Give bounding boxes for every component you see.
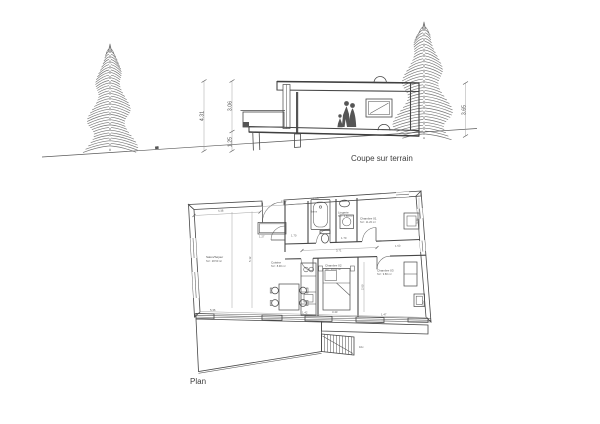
svg-text:1.42: 1.42 xyxy=(302,310,308,314)
top-wall-window xyxy=(396,192,409,198)
svg-text:SU : 28.50 m²: SU : 28.50 m² xyxy=(206,259,222,263)
svg-text:1.05: 1.05 xyxy=(313,196,319,200)
pilotis-1 xyxy=(253,133,254,151)
wall-window-frame xyxy=(366,99,392,117)
plan-room-labels: Salon/Séjour SU : 28.50 m² Cuisine SU : … xyxy=(206,210,394,277)
bedroom3-wardrobe xyxy=(404,262,425,307)
double-bed xyxy=(319,266,355,310)
dim-total-height: 4.31 xyxy=(200,111,206,121)
svg-text:5.12: 5.12 xyxy=(248,256,252,262)
plan-interior-walls xyxy=(285,198,426,317)
dim-plinth: 1.25 xyxy=(228,137,234,147)
svg-text:SU : 9.80 m²: SU : 9.80 m² xyxy=(377,272,392,276)
pilotis-2 xyxy=(259,133,260,150)
architectural-sheet: 4.31 3.06 1.25 3.65 Coupe sur terrain xyxy=(0,0,600,424)
svg-text:2.60: 2.60 xyxy=(360,284,364,290)
svg-text:3.70: 3.70 xyxy=(415,218,419,224)
room-label-chambre1: Chambre 01 xyxy=(360,216,377,220)
room-label-sejour: Salon/Séjour xyxy=(206,255,223,259)
terrace-deck xyxy=(243,112,284,127)
room-label-chambre3: Chambre 03 xyxy=(377,268,394,272)
room-label-chambre2: Chambre 02 xyxy=(325,263,342,267)
svg-text:SU : 4.60 m²: SU : 4.60 m² xyxy=(338,214,353,218)
svg-text:SU : 11.20 m²: SU : 11.20 m² xyxy=(360,220,376,224)
svg-text:SU : 8.90 m²: SU : 8.90 m² xyxy=(271,264,286,268)
drawing-svg: 4.31 3.06 1.25 3.65 Coupe sur terrain xyxy=(0,0,600,424)
svg-text:1.70: 1.70 xyxy=(341,236,347,240)
svg-text:1.62: 1.62 xyxy=(421,300,426,306)
dim-right-height: 3.65 xyxy=(462,105,468,115)
plan-dimension-lines xyxy=(193,198,429,318)
terrain-marker xyxy=(155,146,159,149)
svg-text:3.43: 3.43 xyxy=(332,310,338,314)
interior-post xyxy=(296,92,298,133)
foundation-pier xyxy=(295,134,301,148)
dim-upper: 3.06 xyxy=(228,101,234,111)
bathtub xyxy=(311,200,330,230)
kitchen-counter xyxy=(301,263,316,315)
svg-text:4.38: 4.38 xyxy=(218,209,224,213)
svg-text:SU : 10.60 m²: SU : 10.60 m² xyxy=(325,267,341,271)
toilet xyxy=(320,231,330,244)
svg-text:1.50: 1.50 xyxy=(395,244,401,248)
dining-set xyxy=(270,284,308,310)
roof-top-edge xyxy=(277,82,419,84)
section-building xyxy=(241,76,420,150)
svg-text:1.70: 1.70 xyxy=(291,234,297,238)
plan-caption: Plan xyxy=(190,377,206,386)
plan-deck: 10x xyxy=(196,319,428,373)
svg-text:2.43: 2.43 xyxy=(281,199,287,203)
section-caption: Coupe sur terrain xyxy=(351,154,413,163)
terrace-step xyxy=(243,122,249,127)
room-label-lingerie: Lingerie xyxy=(338,210,349,214)
section-tree-left xyxy=(83,44,138,152)
plan-view: 10x 4.38 5.12 2.43 1.05 1.27 1.70 3.71 1… xyxy=(189,191,432,386)
room-label-cuisine: Cuisine xyxy=(271,260,281,264)
entry-closet xyxy=(258,223,286,235)
section-view: 4.31 3.06 1.25 3.65 Coupe sur terrain xyxy=(42,22,477,163)
svg-text:3.71: 3.71 xyxy=(336,248,342,252)
deck-strip xyxy=(322,322,429,334)
room-label-bains: Bains xyxy=(311,210,318,214)
svg-text:5.36: 5.36 xyxy=(210,308,216,312)
stairs-note: 10x xyxy=(359,345,364,349)
people-silhouettes xyxy=(337,101,356,127)
plan-doors xyxy=(262,202,390,271)
deck-stairs xyxy=(322,334,355,355)
section-tree-right xyxy=(393,22,453,140)
svg-text:1.27: 1.27 xyxy=(259,235,265,239)
svg-text:1.47: 1.47 xyxy=(381,313,387,317)
